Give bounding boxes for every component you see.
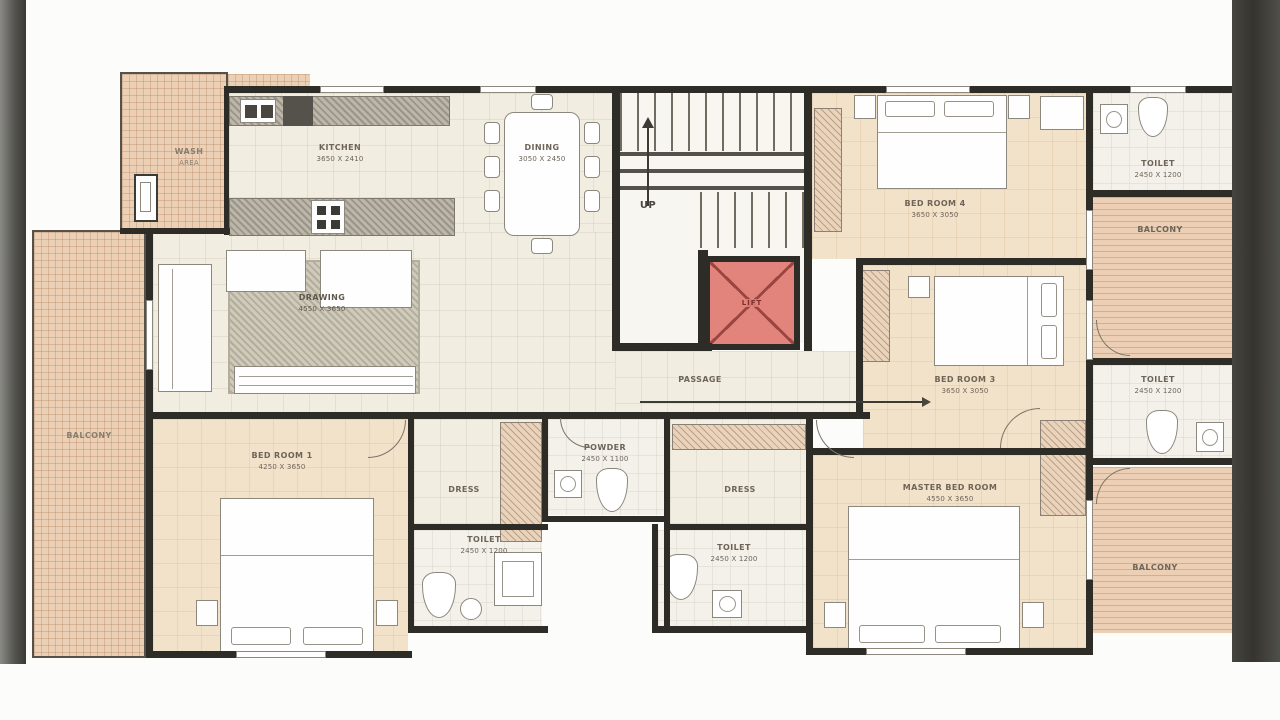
drawing-sofa-left (158, 264, 212, 392)
wash-dim: AREA (150, 158, 228, 169)
lift-label: LIFT (740, 299, 765, 307)
wall-stair-bottom (612, 343, 712, 351)
pillow (231, 627, 291, 645)
toilet-tr-label: TOILET 2450 X 1200 (1108, 158, 1208, 181)
balcony-br-name: BALCONY (1105, 562, 1205, 574)
bedroom3-name: BED ROOM 3 (895, 374, 1035, 386)
entry-arrow-line (640, 401, 925, 403)
bedroom3-label: BED ROOM 3 3650 X 3050 (895, 374, 1035, 397)
window (146, 300, 153, 370)
window (1086, 210, 1093, 270)
wall-washarea-bottom (120, 228, 230, 234)
wash-area-label: WASH AREA (150, 146, 228, 169)
console-line (239, 385, 413, 386)
powder-dim: 2450 X 1100 (550, 454, 660, 465)
burner (317, 220, 326, 229)
wall-bedroom1-right (408, 412, 414, 630)
wall-toilet-bm-top (664, 524, 812, 530)
drawing-name: DRAWING (252, 292, 392, 304)
burner (317, 206, 326, 215)
bedroom3-wardrobe (860, 270, 890, 362)
kitchen-name: KITCHEN (280, 142, 400, 154)
basin-bowl (1202, 429, 1218, 446)
bedroom1-side-table (196, 600, 218, 626)
master-bed (848, 506, 1020, 650)
window (1086, 300, 1093, 360)
wall-toilet-bl-top (408, 524, 548, 530)
dress-right-name: DRESS (700, 484, 780, 496)
window (866, 648, 966, 655)
master-side-table (824, 602, 846, 628)
window (1130, 86, 1186, 93)
wall-toilet-bm-left (652, 524, 658, 633)
balcony-tr-name: BALCONY (1110, 224, 1210, 236)
wall-left-outer (146, 230, 153, 658)
powder-label: POWDER 2450 X 1100 (550, 442, 660, 465)
toilet-bm-label: TOILET 2450 X 1200 (684, 542, 784, 565)
dining-chair (584, 190, 600, 212)
lift: LIFT (704, 256, 800, 350)
wall-toilet-tr-left (1086, 86, 1093, 197)
wall-toilet-bm-bottom (652, 626, 812, 633)
balcony-left-floor (32, 230, 146, 658)
wall-passage-bottom (146, 412, 870, 419)
master-label: MASTER BED ROOM 4550 X 3650 (880, 482, 1020, 505)
blanket-fold (878, 132, 1006, 133)
wall-toilet-mr-bottom (1090, 458, 1232, 465)
basin-bowl (719, 596, 736, 612)
toilet-tr-dim: 2450 X 1200 (1108, 170, 1208, 181)
bedroom3-bed (934, 276, 1064, 366)
balcony-tr-label: BALCONY (1110, 224, 1210, 236)
floor-plan: LIFT (0, 0, 1280, 720)
bedroom1-bed (220, 498, 374, 654)
toilet-bm-basin (712, 590, 742, 618)
drawing-sofa-top (226, 250, 306, 292)
balcony-left-name: BALCONY (40, 430, 138, 442)
window (320, 86, 384, 93)
drawing-label: DRAWING 4550 X 3650 (252, 292, 392, 315)
dining-chair (584, 122, 600, 144)
dining-chair (531, 238, 553, 254)
up-arrow-line (647, 128, 649, 206)
blanket-fold (221, 555, 373, 556)
powder-basin (554, 470, 582, 498)
image-border-right (1232, 0, 1280, 662)
bedroom4-cabinet (1040, 96, 1084, 130)
wash-sink (134, 174, 158, 222)
bedroom3-side-table (908, 276, 930, 298)
image-border-left (0, 0, 26, 664)
pillow (1041, 283, 1057, 317)
toilet-bl-name: TOILET (434, 534, 534, 546)
pillow (935, 625, 1001, 643)
balcony-left-label: BALCONY (40, 430, 138, 442)
wall-toilet-bl-bottom (408, 626, 548, 633)
master-dim: 4550 X 3650 (880, 494, 1020, 505)
dress-right-wardrobe (672, 424, 806, 450)
toilet-tr-basin (1100, 104, 1128, 134)
bedroom4-wardrobe (814, 108, 842, 232)
dress-left-name: DRESS (424, 484, 504, 496)
dress-right-label: DRESS (700, 484, 780, 496)
tv-console (234, 366, 416, 394)
wall-powder-bottom (542, 516, 670, 522)
kitchen-hob (311, 200, 345, 234)
toilet-bl-shower (494, 552, 542, 606)
drawing-dim: 4550 X 3650 (252, 304, 392, 315)
kitchen-appliance (283, 96, 313, 126)
blanket-fold (849, 559, 1019, 560)
toilet-bl-dim: 2450 X 1200 (434, 546, 534, 557)
wall-stair-left (612, 86, 620, 351)
entry-arrow-head (922, 397, 931, 407)
dining-chair (531, 94, 553, 110)
up-name: UP (632, 198, 664, 214)
wall-powder-right (664, 412, 670, 630)
wall-toilet-mr-top (1090, 358, 1232, 365)
passage-label: PASSAGE (640, 374, 760, 386)
bedroom1-name: BED ROOM 1 (212, 450, 352, 462)
master-name: MASTER BED ROOM (880, 482, 1020, 494)
sofa-cushion-line (172, 269, 173, 389)
blanket-fold (1027, 277, 1028, 365)
bedroom1-side-table (376, 600, 398, 626)
window (480, 86, 536, 93)
toilet-bm-name: TOILET (684, 542, 784, 554)
burner (331, 206, 340, 215)
wall-stair-right (804, 86, 812, 351)
bedroom4-side-table (1008, 95, 1030, 119)
bedroom1-label: BED ROOM 1 4250 X 3650 (212, 450, 352, 473)
bedroom4-dim: 3650 X 3050 (865, 210, 1005, 221)
kitchen-dim: 3650 X 2410 (280, 154, 400, 165)
wall-powder-left (542, 412, 548, 522)
sink-bowl-left (245, 105, 257, 118)
pillow (303, 627, 363, 645)
stair-flight-lower (700, 192, 805, 248)
sink-bowl-right (261, 105, 273, 118)
wall-master-left (806, 412, 813, 655)
pillow (859, 625, 925, 643)
basin-bowl (1106, 111, 1122, 128)
wall-toilet-tr-bottom (1090, 190, 1232, 197)
console-line (239, 376, 413, 377)
dining-name: DINING (490, 142, 594, 154)
burner (331, 220, 340, 229)
basin-bowl (560, 476, 576, 492)
dining-label: DINING 3050 X 2450 (490, 142, 594, 165)
dining-chair (484, 122, 500, 144)
up-arrow-head (642, 117, 654, 128)
bedroom3-dim: 3650 X 3050 (895, 386, 1035, 397)
powder-name: POWDER (550, 442, 660, 454)
kitchen-label: KITCHEN 3650 X 2410 (280, 142, 400, 165)
pillow (944, 101, 994, 117)
pillow (1041, 325, 1057, 359)
master-wardrobe (1040, 420, 1086, 516)
toilet-tr-name: TOILET (1108, 158, 1208, 170)
window (236, 651, 326, 658)
passage-name: PASSAGE (640, 374, 760, 386)
dining-chair (484, 190, 500, 212)
master-side-table (1022, 602, 1044, 628)
bedroom1-dim: 4250 X 3650 (212, 462, 352, 473)
dress-left-label: DRESS (424, 484, 504, 496)
balcony-br-label: BALCONY (1105, 562, 1205, 574)
toilet-bl-label: TOILET 2450 X 1200 (434, 534, 534, 557)
up-label: UP (632, 198, 664, 214)
wall-bed4-bed3-divider (856, 258, 1092, 265)
window (1086, 500, 1093, 580)
bedroom4-label: BED ROOM 4 3650 X 3050 (865, 198, 1005, 221)
window (886, 86, 970, 93)
shower-tray (502, 561, 534, 597)
wash-name: WASH (150, 146, 228, 158)
kitchen-sink (240, 99, 276, 123)
toilet-mr-dim: 2450 X 1200 (1108, 386, 1208, 397)
bedroom4-bed (877, 95, 1007, 189)
bedroom4-name: BED ROOM 4 (865, 198, 1005, 210)
toilet-bl-basin (460, 598, 482, 620)
wall-bedroom3-left (856, 258, 863, 419)
bedroom4-side-table (854, 95, 876, 119)
pillow (885, 101, 935, 117)
toilet-mr-name: TOILET (1108, 374, 1208, 386)
toilet-mr-label: TOILET 2450 X 1200 (1108, 374, 1208, 397)
dining-dim: 3050 X 2450 (490, 154, 594, 165)
toilet-bm-dim: 2450 X 1200 (684, 554, 784, 565)
dining-table (504, 112, 580, 236)
wash-sink-bowl (140, 182, 151, 212)
toilet-mr-basin (1196, 422, 1224, 452)
